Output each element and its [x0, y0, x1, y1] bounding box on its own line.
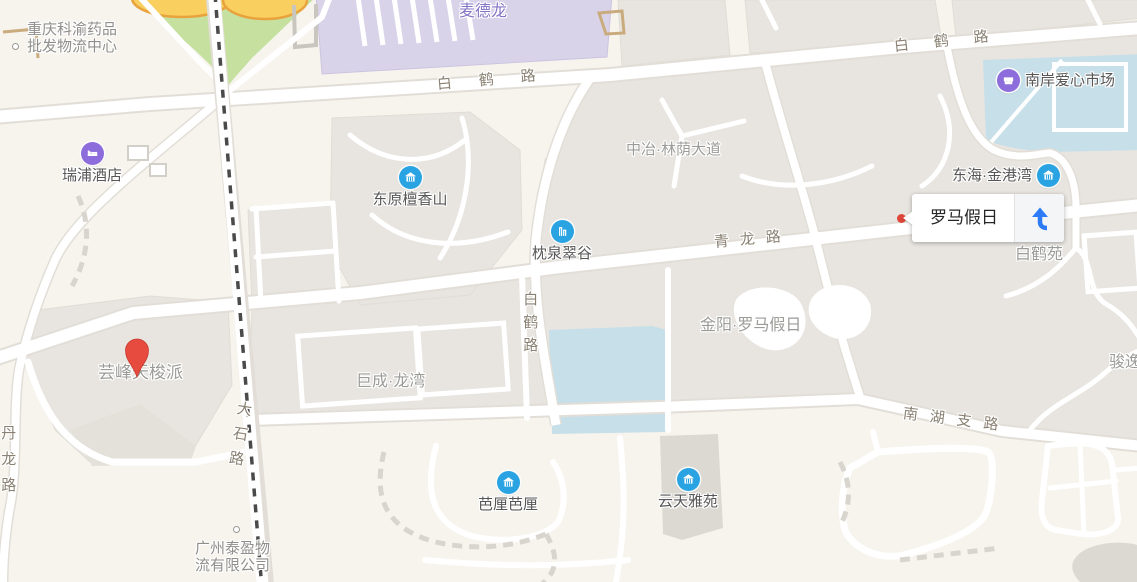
area-label-zhongye: 中冶·林荫大道 [626, 141, 721, 158]
residence-icon [677, 468, 700, 491]
company-dot-marker [12, 43, 19, 50]
navigate-arrow-icon [1027, 205, 1053, 231]
area-label-baiheyuan: 白鹤苑 [1015, 246, 1063, 264]
area-label-junyi: 骏逸 [1109, 354, 1137, 372]
poi-yuntian-yayuan[interactable]: 云天雅苑 [646, 468, 730, 510]
area-label-jinyang-roman-holiday: 金阳·罗马假日 [700, 317, 801, 335]
road-label-baihe-road-vertical: 白鹤路 [521, 291, 538, 360]
residence-icon [1037, 164, 1060, 187]
market-icon [997, 69, 1020, 92]
area-label-jucheng-longwan: 巨成·龙湾 [356, 373, 425, 391]
residence-icon [399, 166, 422, 189]
poi-dongyuan-tanxiangshan[interactable]: 东原檀香山 [368, 166, 452, 208]
navigate-button[interactable] [1014, 194, 1064, 242]
poi-popup[interactable]: 罗马假日 [912, 194, 1064, 242]
poi-nanan-aixin-market[interactable]: 南岸爱心市场 [997, 69, 1115, 92]
poi-zhenquan-cuigu[interactable]: 枕泉翠谷 [520, 220, 604, 262]
road-label-danlong-road: 丹龙路 [0, 425, 16, 503]
company-label-chongqing-keyu: 重庆科渝药品 批发物流中心 [27, 21, 117, 56]
hotel-icon [81, 142, 104, 165]
poi-ruipu-hotel[interactable]: 瑞浦酒店 [50, 142, 134, 184]
popup-title: 罗马假日 [912, 194, 1014, 242]
poi-bali-bali[interactable]: 芭厘芭厘 [466, 471, 550, 513]
residence-icon [497, 471, 520, 494]
map-viewport[interactable]: 重庆科渝药品 批发物流中心 麦德龙 瑞浦酒店 南岸爱心市场 [0, 0, 1137, 582]
map-canvas [0, 0, 1137, 582]
company-dot-marker [233, 526, 240, 533]
company-label-guangzhou-taiying: 广州泰盈物 流有限公司 [195, 540, 270, 575]
red-pin-marker[interactable] [124, 337, 150, 384]
tower-icon [551, 220, 574, 243]
store-label-metro[interactable]: 麦德龙 [459, 3, 507, 21]
poi-donghai-jingangwan[interactable]: 东海·金港湾 [952, 164, 1060, 187]
popup-pointer [903, 211, 913, 225]
